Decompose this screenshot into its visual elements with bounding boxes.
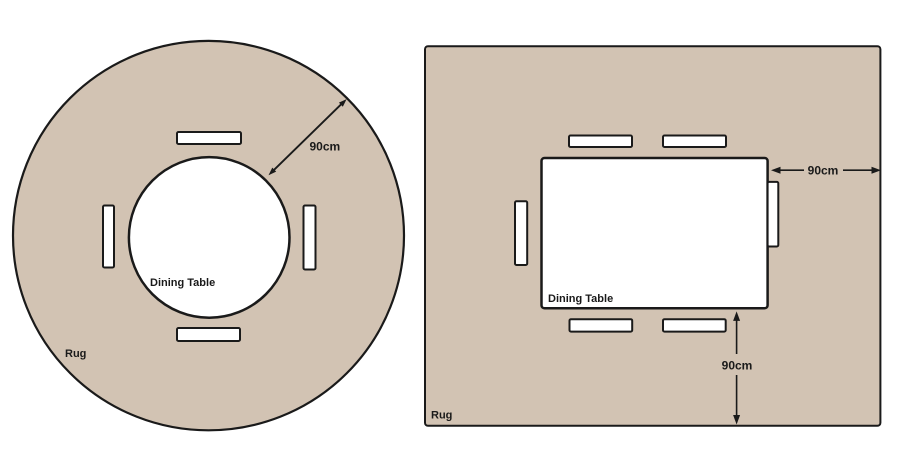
svg-text:Rug: Rug — [431, 409, 452, 421]
svg-text:90cm: 90cm — [722, 359, 753, 373]
svg-text:Rug: Rug — [65, 348, 86, 360]
svg-text:90cm: 90cm — [808, 164, 839, 178]
svg-text:Dining Table: Dining Table — [150, 277, 215, 289]
svg-text:Dining Table: Dining Table — [548, 293, 613, 305]
svg-text:90cm: 90cm — [310, 140, 341, 154]
